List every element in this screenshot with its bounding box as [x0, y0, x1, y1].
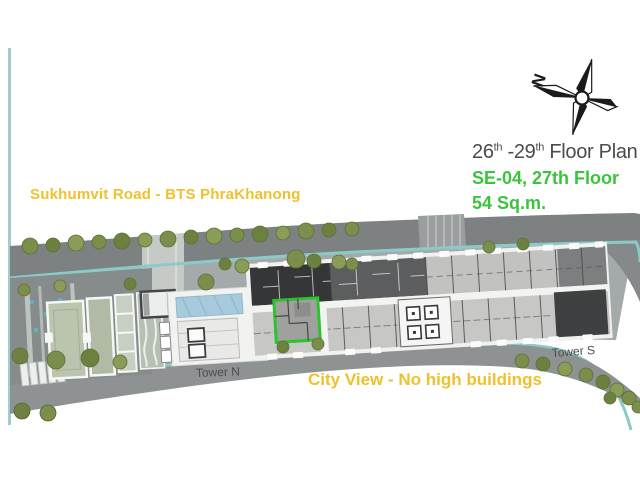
compass-north-letter: N: [528, 71, 550, 89]
header-block: 26th -29th Floor Plan SE-04, 27th Floor …: [472, 141, 640, 214]
title-superscript: th: [536, 141, 545, 153]
view-label: City View - No high buildings: [308, 370, 542, 390]
title-part: -29: [502, 141, 535, 163]
title-part: Floor Plan: [544, 141, 637, 163]
unit-label: SE-04, 27th Floor: [472, 168, 640, 189]
unit-se04-highlight: [274, 298, 320, 343]
tower-s-label: Tower S: [551, 343, 595, 360]
compass-icon: N: [518, 50, 640, 150]
tower-n-label: Tower N: [196, 364, 240, 380]
title-part: 26: [472, 141, 494, 163]
floor-plan-title: 26th -29th Floor Plan: [472, 141, 640, 164]
page: Tower N Tower S N Sukhumvit Road - BTS P…: [0, 0, 640, 480]
road-label: Sukhumvit Road - BTS PhraKhanong: [30, 186, 301, 203]
entry-canopy-east: [418, 214, 466, 250]
dark-corner-unit: [554, 289, 609, 337]
title-superscript: th: [494, 141, 503, 153]
area-label: 54 Sq.m.: [472, 193, 640, 214]
core: [398, 297, 453, 347]
